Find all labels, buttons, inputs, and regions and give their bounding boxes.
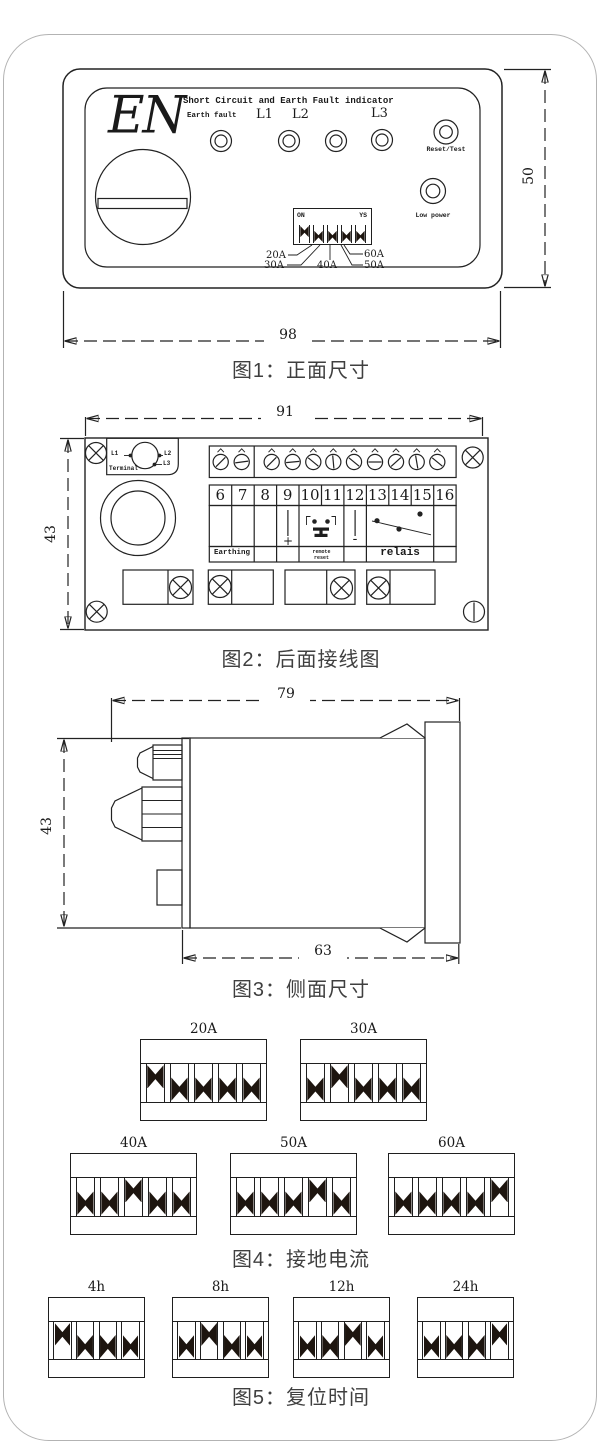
relais-label: relais <box>367 547 433 559</box>
dim-98: 98 <box>264 327 312 343</box>
terminal-number-cell: 7 <box>231 485 253 505</box>
figure3-caption: 图3：侧面尺寸 <box>0 973 602 1002</box>
dip-switch-band <box>294 1321 389 1360</box>
dip-block-label: 60A <box>388 1135 515 1151</box>
figure1-caption: 图1：正面尺寸 <box>0 354 602 383</box>
terminal-number-row: 678910111213141516 <box>209 485 456 505</box>
dip-block-8h <box>172 1297 269 1378</box>
terminal-number-cell: 14 <box>389 485 411 505</box>
dip-switch-band <box>296 225 369 243</box>
switch-position-down <box>424 1335 440 1358</box>
switch-position-down <box>261 1191 277 1214</box>
dip-switch-slot <box>177 1322 196 1359</box>
figure4-caption: 图4：接地电流 <box>0 1243 602 1272</box>
terminal-number-cell: 11 <box>321 485 343 505</box>
front-bezel <box>425 722 460 943</box>
dip-switch-slot <box>200 1322 219 1359</box>
switch-position-down <box>100 1335 116 1358</box>
dip-switch-slot <box>378 1064 397 1102</box>
dip-switch-slot <box>308 1178 327 1216</box>
terminal-number-cell: 16 <box>434 485 456 505</box>
switch-position-down <box>149 1191 165 1214</box>
terminal-screw <box>213 454 228 469</box>
dip-switch-slot <box>245 1322 264 1359</box>
dip-switch-slot <box>53 1322 72 1359</box>
dip-switch-slot <box>422 1322 441 1359</box>
dip-switch-slot <box>284 1178 303 1216</box>
dip-switch-slot <box>366 1322 385 1359</box>
dip-block-12h <box>293 1297 390 1378</box>
dip-block-label: 12h <box>293 1279 390 1295</box>
switch-position-down <box>285 1191 301 1214</box>
dip-switch-slot <box>394 1178 413 1216</box>
switch-position-down <box>443 1191 459 1214</box>
terminal-screw <box>234 454 249 469</box>
pin-label-l3: L3 <box>163 460 170 467</box>
switch-position-down <box>355 1077 371 1100</box>
terminal-number-cell: 6 <box>209 485 231 505</box>
dip-block-40A <box>70 1153 197 1235</box>
switch-position-down <box>356 231 364 242</box>
terminal-number-cell: 10 <box>299 485 321 505</box>
switch-position-down <box>328 231 336 242</box>
switch-position-down <box>403 1077 419 1100</box>
switch-position-down <box>101 1191 117 1214</box>
dip-switch-slot <box>170 1064 189 1102</box>
terminal-screw <box>285 454 300 469</box>
switch-position-down <box>314 231 322 242</box>
switch-position-down <box>243 1077 259 1100</box>
dip-switch-slot <box>146 1064 165 1102</box>
dip-switch-band <box>418 1321 513 1360</box>
round-connector <box>101 481 176 556</box>
switch-position-down <box>77 1335 93 1358</box>
connector-screw <box>331 577 353 599</box>
switch-position-up <box>300 226 308 237</box>
dip-switch-slot <box>124 1178 143 1216</box>
terminal-caret-mark <box>434 449 440 452</box>
terminal-screw <box>306 454 321 469</box>
terminal-screw <box>388 454 403 469</box>
dip-switch-slot <box>341 225 352 243</box>
terminal-screw <box>367 454 382 469</box>
dip-block-label: 4h <box>48 1279 145 1295</box>
switch-position-down <box>322 1335 338 1358</box>
dip-switch-slot <box>99 1322 118 1359</box>
dip-switch-slot <box>442 1178 461 1216</box>
fig2-generated-art <box>86 443 485 623</box>
switch-position-up <box>331 1065 347 1088</box>
fig2-art <box>60 417 488 630</box>
switch-position-up <box>345 1323 361 1346</box>
dip-block-20A <box>140 1039 267 1121</box>
terminal-box-label: Terminal <box>109 465 138 472</box>
dip-block-label: 50A <box>230 1135 357 1151</box>
dip-switch-band <box>173 1321 268 1360</box>
terminal-caret-mark <box>414 449 420 452</box>
remote-reset-line2: reset <box>314 555 329 561</box>
dim-43-rear: 43 <box>43 525 59 543</box>
dip-block-4h <box>48 1297 145 1378</box>
terminal-caret-mark <box>372 449 378 452</box>
switch-position-down <box>469 1335 485 1358</box>
reset-test-label: Reset/Test <box>420 146 472 153</box>
dip-switch-slot <box>313 225 324 243</box>
dip-switch-slot <box>402 1064 421 1102</box>
led-l2 <box>326 131 347 152</box>
dip-switch-slot <box>490 1322 509 1359</box>
mounting-screw <box>462 447 483 468</box>
dip-switch-slot <box>172 1178 191 1216</box>
dip-block-label: 24h <box>417 1279 514 1295</box>
figure5-caption: 图5：复位时间 <box>0 1381 602 1410</box>
led-l3 <box>372 130 393 151</box>
dip-switch-slot <box>327 225 338 243</box>
terminal-caret-mark <box>290 449 296 452</box>
plus-symbol: + <box>281 534 295 548</box>
dim-63: 63 <box>299 943 347 959</box>
mounting-screw <box>86 443 107 464</box>
side-body <box>190 738 425 928</box>
terminal-number-cell: 15 <box>411 485 433 505</box>
dip-on-label: ON <box>297 212 305 219</box>
rear-connector-block <box>285 570 355 604</box>
dip-block-label: 40A <box>70 1135 197 1151</box>
switch-position-down <box>247 1335 263 1358</box>
phase-label-l3: L3 <box>371 106 388 121</box>
dip-switch-slot <box>330 1064 349 1102</box>
dip-switch-slot <box>299 225 310 243</box>
switch-position-down <box>237 1191 253 1214</box>
switch-position-up <box>125 1179 141 1202</box>
rear-connector-block <box>367 570 435 604</box>
terminal-screw <box>264 454 279 469</box>
dip-block-60A <box>388 1153 515 1235</box>
dip-block-label: 30A <box>300 1021 427 1037</box>
terminal-screw <box>326 454 341 469</box>
dip-switch-slot <box>218 1064 237 1102</box>
switch-position-down <box>307 1077 323 1100</box>
switch-position-down <box>379 1077 395 1100</box>
low-power-led <box>421 179 446 204</box>
switch-position-down <box>419 1191 435 1214</box>
switch-position-up <box>492 1323 508 1346</box>
terminal-caret-mark <box>269 449 275 452</box>
pin-label-l1: L1 <box>111 450 118 457</box>
dip-switch-slot <box>321 1322 340 1359</box>
dip-block-label: 20A <box>140 1021 267 1037</box>
dip-switch-slot <box>468 1322 487 1359</box>
switch-position-up <box>309 1179 325 1202</box>
dip-switch-band <box>389 1177 514 1217</box>
connector-block <box>157 870 182 905</box>
tap-label-60a: 60A <box>364 249 384 260</box>
fig3-art <box>57 698 460 964</box>
front-dip-switch: ON YS <box>293 208 372 245</box>
manual-page: EN Short Circuit and Earth Fault indicat… <box>0 0 602 1444</box>
phase-label-l1: L1 <box>256 107 273 122</box>
switch-position-down <box>179 1335 195 1358</box>
switch-position-up <box>55 1323 71 1346</box>
terminal-number-cell: 8 <box>254 485 276 505</box>
dip-ys-label: YS <box>359 212 367 219</box>
terminal-caret-mark <box>351 449 357 452</box>
remote-reset-label: remote reset <box>299 549 344 561</box>
mounting-clip-top <box>380 724 425 738</box>
switch-position-down <box>77 1191 93 1214</box>
relay-contact-symbol <box>372 511 431 534</box>
dip-switch-slot <box>76 1322 95 1359</box>
rear-connector-block <box>123 570 193 604</box>
dip-switch-slot <box>242 1064 261 1102</box>
switch-position-down <box>171 1077 187 1100</box>
switch-position-down <box>224 1335 240 1358</box>
terminal-screw <box>346 454 361 469</box>
led-l1 <box>279 131 300 152</box>
phase-label-l2: L2 <box>292 107 309 122</box>
terminal-number-cell: 12 <box>344 485 366 505</box>
rear-cap <box>182 738 190 928</box>
dip-switch-slot <box>332 1178 351 1216</box>
switch-position-down <box>195 1077 211 1100</box>
dip-switch-slot <box>298 1322 317 1359</box>
dip-block-50A <box>230 1153 357 1235</box>
terminal-caret-mark <box>393 449 399 452</box>
mounting-clip-bottom <box>380 928 425 942</box>
mounting-screw <box>86 601 107 622</box>
dip-switch-slot <box>306 1064 325 1102</box>
low-power-label: Low power <box>407 212 459 219</box>
connector-screw <box>209 576 231 598</box>
terminal-caret-mark <box>330 449 336 452</box>
reset-test-button <box>434 120 458 144</box>
dip-switch-slot <box>148 1178 167 1216</box>
figure2-caption: 图2：后面接线图 <box>0 643 602 672</box>
tap-label-40a: 40A <box>317 260 337 271</box>
switch-position-down <box>300 1335 316 1358</box>
mounting-screw-slotted <box>464 601 485 622</box>
switch-position-down <box>333 1191 349 1214</box>
remote-reset-symbol <box>307 517 336 538</box>
dip-switch-slot <box>100 1178 119 1216</box>
rear-connector-block <box>208 570 273 604</box>
panel-title: Short Circuit and Earth Fault indicator <box>183 96 394 106</box>
dip-switch-slot <box>418 1178 437 1216</box>
dip-switch-slot <box>490 1178 509 1216</box>
dip-switch-slot <box>223 1322 242 1359</box>
dim-50: 50 <box>521 167 537 185</box>
switch-position-down <box>219 1077 235 1100</box>
dip-switch-slot <box>76 1178 95 1216</box>
switch-position-up <box>201 1323 217 1346</box>
tap-label-50a: 50A <box>364 260 384 271</box>
terminal-screw <box>409 454 424 469</box>
battery-cover-knob <box>96 150 191 245</box>
switch-position-down <box>342 231 350 242</box>
brand-logo: EN <box>108 89 184 141</box>
terminal-screw <box>430 454 445 469</box>
dip-switch-slot <box>236 1178 255 1216</box>
terminal-number-cell: 13 <box>366 485 388 505</box>
dim-79: 79 <box>262 686 310 702</box>
switch-position-down <box>173 1191 189 1214</box>
dip-switch-slot <box>354 1064 373 1102</box>
dip-switch-slot <box>194 1064 213 1102</box>
earth-fault-led <box>211 131 232 152</box>
dip-switch-slot <box>445 1322 464 1359</box>
switch-position-down <box>368 1335 384 1358</box>
terminal-number-cell: 9 <box>276 485 298 505</box>
connector-screw <box>170 577 192 599</box>
switch-position-down <box>123 1335 139 1358</box>
dip-switch-slot <box>260 1178 279 1216</box>
switch-position-down <box>395 1191 411 1214</box>
dip-block-30A <box>300 1039 427 1121</box>
dip-switch-band <box>49 1321 144 1360</box>
tap-label-30a: 30A <box>264 260 284 271</box>
connector-plug-small <box>138 745 183 780</box>
dip-switch-slot <box>121 1322 140 1359</box>
dip-switch-band <box>231 1177 356 1217</box>
dip-block-label: 8h <box>172 1279 269 1295</box>
terminal-caret-mark <box>218 449 224 452</box>
dip-switch-slot <box>344 1322 363 1359</box>
dip-switch-slot <box>355 225 366 243</box>
switch-position-down <box>446 1335 462 1358</box>
connector-plug-large <box>112 787 183 841</box>
dim-91: 91 <box>261 404 309 420</box>
dip-switch-band <box>301 1063 426 1103</box>
terminal-caret-mark <box>239 449 245 452</box>
connector-screw <box>368 577 390 599</box>
pin-label-l2: L2 <box>164 450 171 457</box>
dip-switch-slot <box>466 1178 485 1216</box>
switch-position-up <box>491 1179 507 1202</box>
switch-position-up <box>147 1065 163 1088</box>
dip-switch-band <box>141 1063 266 1103</box>
dim-43-side: 43 <box>39 817 55 835</box>
dip-block-24h <box>417 1297 514 1378</box>
minus-symbol: - <box>348 531 362 547</box>
earthing-label: Earthing <box>210 549 254 557</box>
earth-fault-label: Earth fault <box>187 112 237 120</box>
dip-switch-band <box>71 1177 196 1217</box>
terminal-caret-mark <box>310 449 316 452</box>
switch-position-down <box>467 1191 483 1214</box>
